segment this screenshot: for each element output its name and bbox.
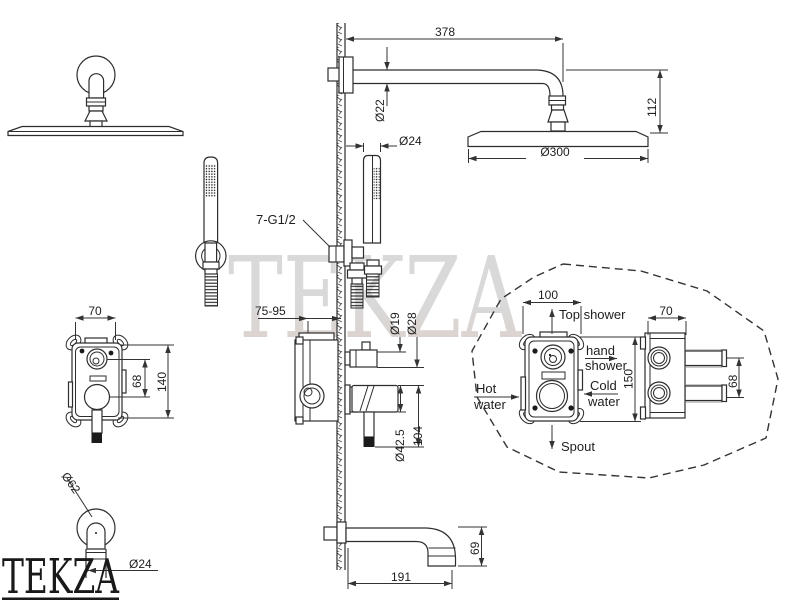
thread-callout-label: 7-G1/2 xyxy=(256,212,296,227)
dim-arm-length: 378 xyxy=(346,25,563,82)
flow-hand-label-2: shower xyxy=(585,358,628,373)
flow-cold-label-1: Cold xyxy=(590,378,617,393)
dim-arm-diameter: Ø22 xyxy=(373,47,387,122)
brand-logo-text: TEKZA xyxy=(2,549,120,600)
valve-front-view xyxy=(63,332,131,443)
dim-valve-centers-label: 68 xyxy=(130,374,144,388)
shower-arm xyxy=(328,57,568,131)
dim-spout-face-diameter-label: Ø62 xyxy=(59,470,84,497)
flow-hot-label-1: Hot xyxy=(476,381,497,396)
dim-box-ports-label: 68 xyxy=(726,374,740,388)
brand-logo: TEKZA xyxy=(2,549,120,600)
dim-valve-width: 70 xyxy=(76,304,116,340)
dim-handle-diameter-label: Ø42.5 xyxy=(393,429,407,462)
dim-box-width-label: 100 xyxy=(538,288,558,302)
dim-arm-diameter-label: Ø22 xyxy=(373,99,387,122)
center-watermark: TEKZA xyxy=(228,234,522,364)
hand-shower-front-view xyxy=(196,157,226,306)
wall-section xyxy=(337,23,345,570)
dim-handle-length-label: 104 xyxy=(411,426,425,446)
dim-arm-length-label: 378 xyxy=(435,25,455,39)
detail-box-front-view xyxy=(516,331,586,426)
dim-head-drop: 112 xyxy=(566,70,668,133)
dim-head-drop-label: 112 xyxy=(645,98,659,117)
dim-stem-diameter-label: Ø19 xyxy=(388,312,402,335)
flow-spout-label: Spout xyxy=(561,439,595,454)
dim-head-diameter: Ø300 xyxy=(469,145,649,163)
dim-recess-depth-label: 75-95 xyxy=(255,304,286,318)
dim-spout-drop: 69 xyxy=(458,527,487,566)
dim-spout-drop-label: 69 xyxy=(468,541,482,555)
dim-handshower-diameter-label: Ø24 xyxy=(399,134,422,148)
dim-spout-face-diameter: Ø62 xyxy=(59,470,92,517)
dim-handshower-diameter: Ø24 xyxy=(346,134,422,152)
dim-spout-pipe-diameter-label: Ø24 xyxy=(129,557,152,571)
shower-system-drawing: TEKZA xyxy=(0,0,787,600)
flow-hand-label-1: hand xyxy=(586,343,615,358)
dim-valve-width-label: 70 xyxy=(88,304,102,318)
dim-valve-height-label: 140 xyxy=(155,372,169,392)
dim-knob-diameter-label: Ø28 xyxy=(405,312,419,335)
overhead-shower-front-view xyxy=(8,56,183,136)
dim-box-depth-label: 70 xyxy=(659,304,673,318)
technical-drawing-page: TEKZA xyxy=(0,0,787,600)
flow-top-shower-label: Top shower xyxy=(559,307,626,322)
detail-box-side-view: 70 68 xyxy=(641,304,745,419)
flow-hot-label-2: water xyxy=(473,397,506,412)
dim-spout-length-label: 191 xyxy=(391,570,411,584)
flow-cold-label-2: water xyxy=(587,394,620,409)
dim-head-diameter-label: Ø300 xyxy=(540,145,570,159)
